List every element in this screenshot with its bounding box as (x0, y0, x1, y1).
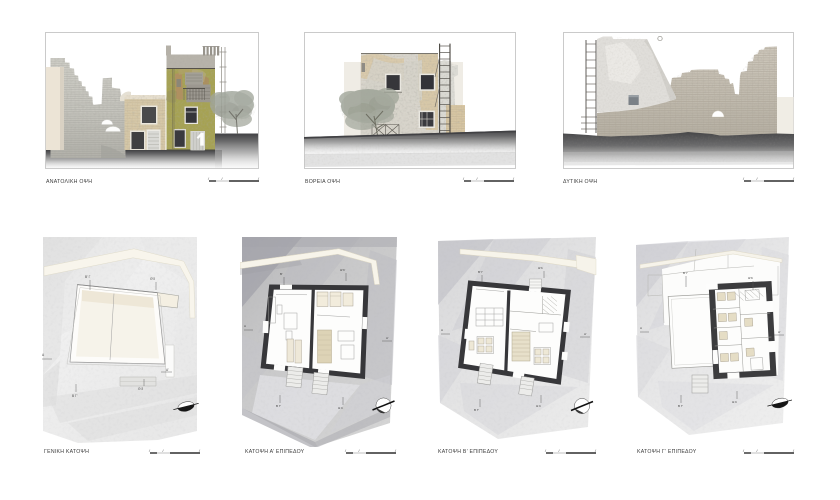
svg-text:Θ δ: Θ δ (732, 400, 737, 404)
svg-text:Β’ Γ: Β’ Γ (478, 270, 483, 274)
svg-text:Α: Α (441, 328, 443, 332)
svg-text:Θ δ: Θ δ (138, 387, 143, 391)
svg-text:Θ’δ: Θ’δ (150, 277, 155, 281)
svg-text:Β Γ’: Β Γ’ (678, 404, 683, 408)
svg-text:Α’: Α’ (778, 330, 781, 334)
svg-text:Θ’δ: Θ’δ (538, 266, 543, 270)
svg-text:Α’: Α’ (584, 332, 587, 336)
svg-text:Α: Α (244, 324, 246, 328)
svg-text:Θ δ: Θ δ (536, 404, 541, 408)
svg-text:Θ’δ’: Θ’δ’ (340, 268, 346, 272)
svg-text:Β Γ’: Β Γ’ (276, 404, 281, 408)
svg-text:Θ δ: Θ δ (338, 406, 343, 410)
svg-text:Β Γ’: Β Γ’ (474, 408, 479, 412)
svg-text:Θ’Κ: Θ’Κ (748, 276, 753, 280)
svg-text:Β’: Β’ (280, 272, 283, 276)
svg-text:Β’ Γ: Β’ Γ (683, 271, 688, 275)
svg-text:Β Γ’: Β Γ’ (72, 394, 78, 398)
svg-text:Α: Α (640, 326, 642, 330)
svg-text:Β’ Γ: Β’ Γ (85, 275, 91, 279)
svg-text:Α’: Α’ (386, 336, 389, 340)
svg-text:Α’: Α’ (166, 368, 169, 372)
